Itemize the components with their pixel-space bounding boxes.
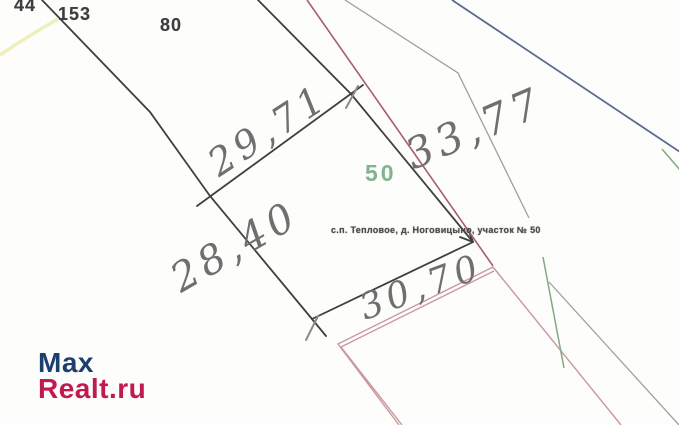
plot-address-label: с.п. Тепловое, д. Ноговицыно, участок № … bbox=[331, 225, 541, 235]
survey-line-green-edge bbox=[662, 149, 679, 170]
cadastral-plan-image: 44 153 80 50 с.п. Тепловое, д. Ноговицын… bbox=[0, 0, 679, 425]
watermark-logo: Max Realt.ru bbox=[38, 350, 146, 402]
survey-line-olive-lower bbox=[549, 282, 679, 425]
logo-realt-text: Realt.ru bbox=[38, 376, 146, 402]
survey-line-green bbox=[543, 257, 564, 368]
neighbor-parcel-label-80: 80 bbox=[160, 15, 182, 36]
neighbor-parcel-label-153: 153 bbox=[58, 4, 91, 25]
survey-line-yellow bbox=[0, 19, 58, 55]
plot-number-label: 50 bbox=[365, 160, 397, 187]
neighbor-parcel-label-44: 44 bbox=[14, 0, 36, 16]
